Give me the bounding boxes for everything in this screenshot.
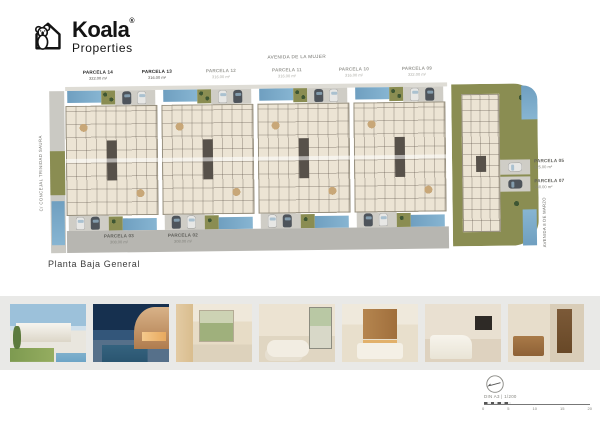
- car: [76, 217, 85, 230]
- photo-strip: [0, 296, 600, 370]
- brand-name: Koala: [72, 17, 129, 42]
- villa-block-right: [451, 79, 539, 246]
- garden: [301, 214, 315, 228]
- pool: [523, 209, 537, 245]
- car: [283, 214, 292, 227]
- tick-20: 20: [588, 406, 592, 411]
- car: [233, 90, 242, 103]
- parcel-label-14: PARCELA 14 322.00 m²: [76, 69, 120, 81]
- scale-text: DIN A3 | 1/200: [484, 394, 517, 399]
- pool: [259, 88, 293, 100]
- garden: [109, 216, 123, 230]
- garden: [50, 151, 66, 195]
- car: [314, 89, 323, 102]
- parcel-label-02: PARCELA 02 308.00 m²: [161, 232, 205, 244]
- garden: [197, 89, 211, 103]
- villa-block-1: [65, 90, 159, 231]
- pool: [411, 214, 445, 226]
- pool: [123, 218, 157, 230]
- building-floorplan: [353, 101, 446, 212]
- garden: [205, 215, 219, 229]
- pool: [521, 85, 537, 119]
- tick-5: 5: [507, 406, 509, 411]
- photo-interior-terrace: [176, 304, 252, 362]
- car: [410, 88, 419, 101]
- koala-properties-logo: Koala® Properties: [30, 18, 134, 54]
- car: [379, 213, 388, 226]
- garden: [293, 88, 307, 102]
- pool: [52, 201, 66, 245]
- street-name-top: AVENIDA DE LA MUJER: [217, 53, 377, 60]
- garden: [101, 90, 115, 104]
- driveway: [115, 90, 155, 105]
- logo-text: Koala® Properties: [72, 18, 134, 54]
- villa-block-4: [353, 86, 447, 227]
- driveway: [357, 212, 397, 227]
- parcel-label-05: PARCELA 05 325.00 m²: [534, 158, 570, 170]
- driveway: [307, 88, 347, 103]
- driveway: [500, 176, 530, 191]
- driveway: [500, 159, 530, 174]
- parcel-label-11: PARCELA 11 316.00 m²: [265, 67, 309, 79]
- koala-house-icon: [30, 18, 66, 54]
- street-name-right: AVENIDA 8 DE MARZO: [541, 189, 547, 247]
- driveway: [211, 89, 251, 104]
- car: [508, 179, 522, 188]
- tick-0: 0: [482, 406, 484, 411]
- pool: [219, 217, 253, 229]
- street-name-left: C/ CONCEJAL TRINIDAD SAURA: [37, 113, 43, 233]
- parcel-label-07: PARCELA 07 340.00 m²: [534, 178, 570, 190]
- car: [137, 91, 146, 104]
- car: [329, 89, 338, 102]
- garden: [389, 87, 403, 101]
- photo-bedroom: [425, 304, 501, 362]
- photo-bathroom-hall: [508, 304, 584, 362]
- villa-block-2: [161, 89, 255, 230]
- car: [268, 214, 277, 227]
- building-floorplan: [257, 103, 350, 214]
- pool: [163, 89, 197, 101]
- plan-title: Planta Baja General: [48, 259, 140, 269]
- garden: [397, 213, 411, 227]
- photo-living-room: [259, 304, 335, 362]
- parcel-label-10: PARCELA 10 316.00 m²: [332, 66, 376, 78]
- villa-block-3: [257, 88, 351, 229]
- site-plan: AVENIDA DE LA MUJER PARCELA 14 322.00 m²…: [37, 49, 596, 268]
- driveway: [165, 214, 205, 229]
- building-floorplan: [65, 105, 158, 216]
- parcel-label-12: PARCELA 12 316.00 m²: [199, 68, 243, 80]
- scale-bar: [484, 401, 590, 405]
- car: [218, 90, 227, 103]
- car: [364, 213, 373, 226]
- pool: [67, 91, 101, 103]
- car: [91, 217, 100, 230]
- parcel-label-09: PARCELA 09 322.00 m²: [395, 65, 439, 77]
- photo-kitchen-dining: [342, 304, 418, 362]
- car: [122, 91, 131, 104]
- pool: [355, 87, 389, 99]
- car: [508, 162, 522, 171]
- photo-exterior-dusk: [93, 304, 169, 362]
- photo-exterior-day: [10, 304, 86, 362]
- tick-10: 10: [533, 406, 537, 411]
- building-floorplan: [161, 104, 254, 215]
- scale-ticks: 0 5 10 15 20: [482, 406, 592, 411]
- driveway: [261, 213, 301, 228]
- car: [425, 88, 434, 101]
- driveway: [69, 216, 109, 231]
- building-floorplan: [461, 94, 501, 232]
- registered-mark: ®: [129, 18, 134, 25]
- pool: [315, 216, 349, 228]
- brand-subtitle: Properties: [72, 42, 134, 54]
- car: [172, 216, 181, 229]
- car: [187, 215, 196, 228]
- parcel-label-13: PARCELA 13 316.00 m²: [135, 69, 179, 81]
- tick-15: 15: [560, 406, 564, 411]
- driveway: [403, 86, 443, 101]
- parcel-label-03: PARCELA 03 308.00 m²: [97, 233, 141, 245]
- brochure-page: Koala® Properties AVENIDA DE LA MUJER PA…: [0, 0, 600, 425]
